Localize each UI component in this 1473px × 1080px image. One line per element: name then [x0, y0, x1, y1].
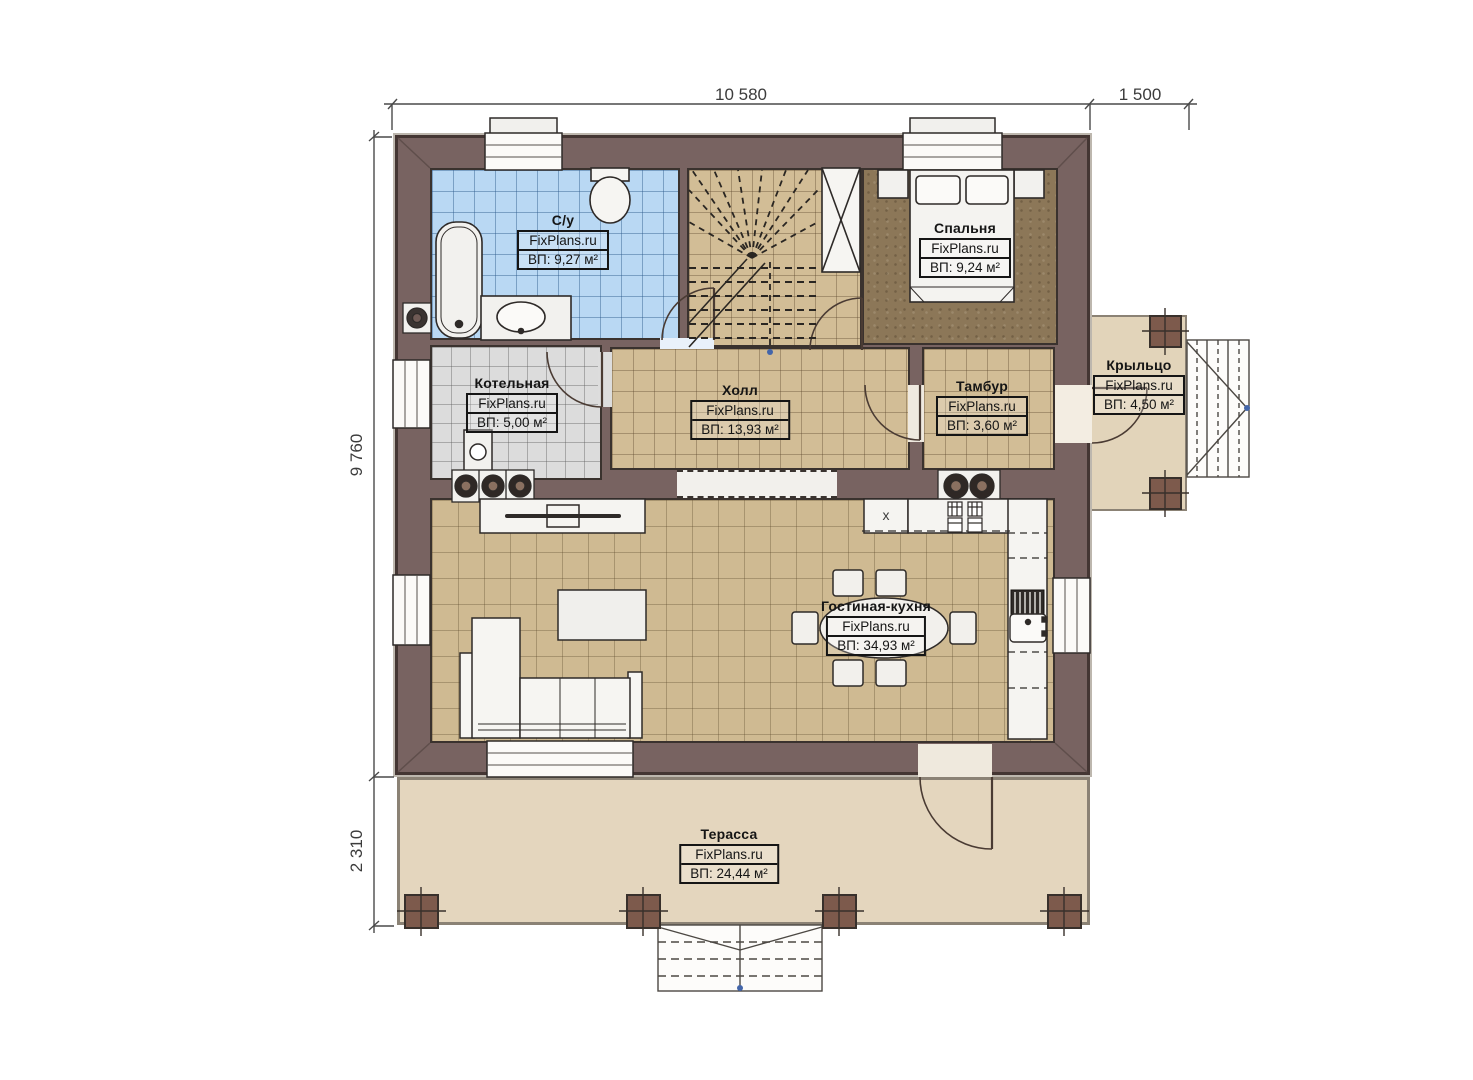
room-area: ВП: 24,44 м²: [681, 865, 777, 882]
room-label-living-kitchen: Гостиная-кухня FixPlans.ru ВП: 34,93 м²: [821, 598, 931, 656]
room-area: ВП: 5,00 м²: [468, 414, 556, 431]
room-name: С/у: [517, 212, 609, 228]
room-name: Крыльцо: [1093, 357, 1185, 373]
room-stairwell: [687, 168, 862, 347]
brand-watermark: FixPlans.ru: [519, 232, 607, 251]
room-area: ВП: 34,93 м²: [828, 637, 924, 654]
room-area: ВП: 13,93 м²: [692, 421, 788, 438]
room-area: ВП: 9,27 м²: [519, 251, 607, 268]
room-label-terrace: Терасса FixPlans.ru ВП: 24,44 м²: [679, 826, 779, 884]
hall-living-opening: [677, 470, 837, 498]
room-area: ВП: 4,50 м²: [1095, 396, 1183, 413]
brand-watermark: FixPlans.ru: [468, 395, 556, 414]
room-area: ВП: 9,24 м²: [921, 259, 1009, 276]
room-living-kitchen: [430, 498, 1055, 743]
fridge-x-mark: x: [883, 507, 890, 523]
porch-steps: [1187, 340, 1250, 477]
floor-plan: 10 580 1 500 9 760 2 310 С/у FixPlans.ru…: [0, 0, 1473, 1080]
room-label-bedroom: Спальня FixPlans.ru ВП: 9,24 м²: [919, 220, 1011, 278]
room-name: Гостиная-кухня: [821, 598, 931, 614]
room-label-vestibule: Тамбур FixPlans.ru ВП: 3,60 м²: [936, 378, 1028, 436]
room-name: Терасса: [679, 826, 779, 842]
room-label-bathroom: С/у FixPlans.ru ВП: 9,27 м²: [517, 212, 609, 270]
brand-watermark: FixPlans.ru: [692, 402, 788, 421]
brand-watermark: FixPlans.ru: [681, 846, 777, 865]
room-label-hall: Холл FixPlans.ru ВП: 13,93 м²: [690, 382, 790, 440]
room-label-boiler: Котельная FixPlans.ru ВП: 5,00 м²: [466, 375, 558, 433]
brand-watermark: FixPlans.ru: [938, 398, 1026, 417]
room-area: ВП: 3,60 м²: [938, 417, 1026, 434]
brand-watermark: FixPlans.ru: [1095, 377, 1183, 396]
dim-left-terrace: 2 310: [347, 830, 367, 873]
room-name: Холл: [690, 382, 790, 398]
room-name: Котельная: [466, 375, 558, 391]
brand-watermark: FixPlans.ru: [828, 618, 924, 637]
room-label-porch: Крыльцо FixPlans.ru ВП: 4,50 м²: [1093, 357, 1185, 415]
terrace-steps: [658, 925, 822, 991]
room-name: Тамбур: [936, 378, 1028, 394]
dim-left-height: 9 760: [347, 434, 367, 477]
dim-top-porch: 1 500: [1119, 85, 1162, 105]
brand-watermark: FixPlans.ru: [921, 240, 1009, 259]
dim-top-width: 10 580: [715, 85, 767, 105]
room-name: Спальня: [919, 220, 1011, 236]
